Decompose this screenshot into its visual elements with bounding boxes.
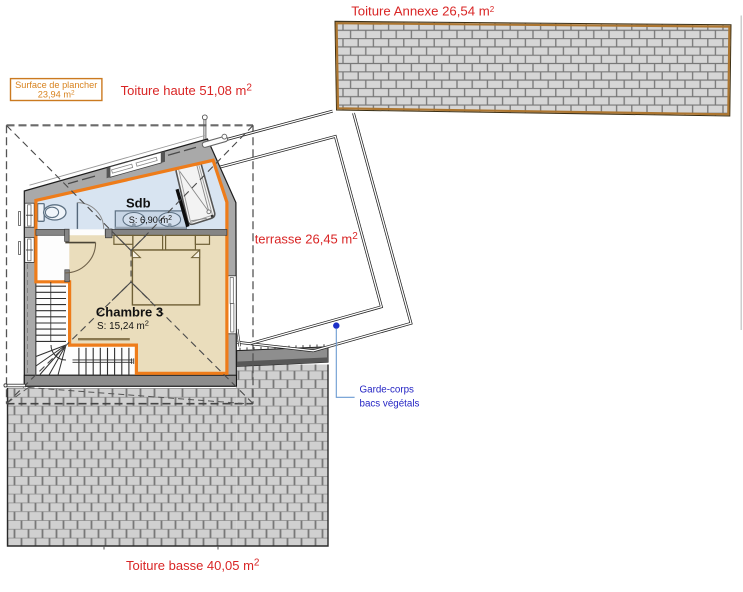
svg-text:23,94 m2: 23,94 m2 [38,90,75,100]
svg-text:Surface de plancher: Surface de plancher [15,80,97,90]
svg-text:S: 15,24 m2: S: 15,24 m2 [97,319,149,333]
svg-text:Toiture Annexe 26,54 m2: Toiture Annexe 26,54 m2 [351,3,495,18]
svg-text:S: 6,90 m2: S: 6,90 m2 [129,215,172,225]
svg-text:Toiture basse 40,05 m2: Toiture basse 40,05 m2 [126,558,260,574]
svg-text:Toiture haute 51,08 m2: Toiture haute 51,08 m2 [121,83,253,99]
svg-text:Sdb: Sdb [126,196,151,211]
svg-text:Chambre 3: Chambre 3 [96,304,163,319]
svg-text:terrasse 26,45 m2: terrasse 26,45 m2 [255,231,359,247]
svg-text:bacs végétals: bacs végétals [360,399,420,410]
svg-text:Garde-corps: Garde-corps [360,385,415,396]
